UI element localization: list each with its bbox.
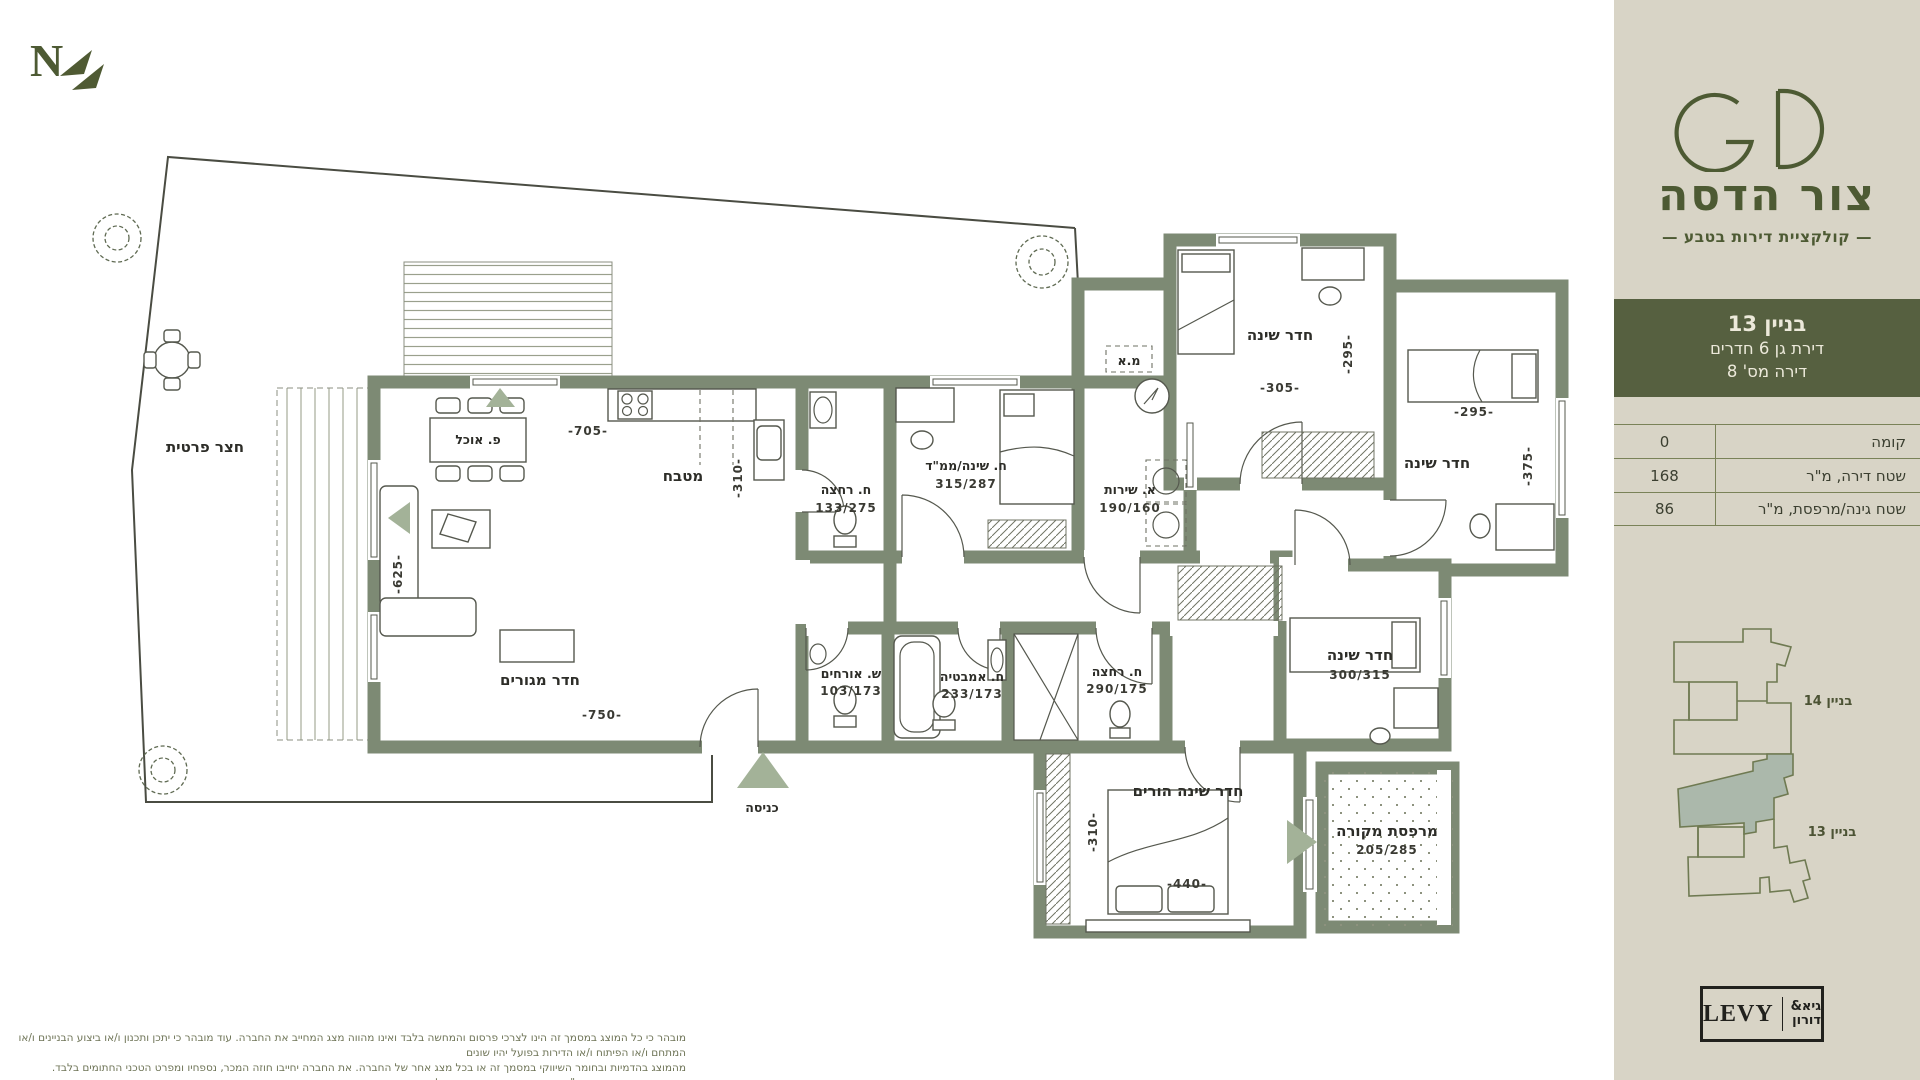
disclaimer-line2: מהמוצג בהדמיות ובחומר השיווקי במסמך זה א… [14,1061,686,1080]
dim-terrace: 205/285 [1356,843,1417,857]
north-letter: N [30,35,63,86]
site-label-building14: בניין 14 [1804,694,1853,709]
dim-kitchen-w: -705- [568,424,608,438]
dim-guest: 103/173 [820,684,881,698]
entrance-arrow-icon [737,752,789,788]
wood-deck [277,388,369,740]
room-label-mamad: ח. שינה/ממ"ד [925,458,1007,473]
unit-type: דירת גן 6 חדרים [1614,337,1920,360]
dim-master-d: -310- [1086,812,1100,852]
spec-label-garden: שטח גינה/מרפסת, מ"ר [1716,493,1920,525]
room-label-dining: פ. אוכל [455,432,500,447]
spec-label-area: שטח דירה, מ"ר [1716,459,1920,492]
developer-logo: LEVY גיא& דורון [1700,986,1824,1042]
brand-logo [1614,86,1920,176]
disclaimer-text: מובהר כי כל המוצג במסמך זה הינו לצרכי פר… [14,1031,686,1080]
tree-icon [93,214,141,262]
spec-value-garden: 86 [1614,493,1716,525]
logo-divider [1782,997,1783,1031]
room-label-entrance: כניסה [745,800,779,815]
north-arrow-icon: N [30,35,104,90]
room-label-master: חדר שינה הורים [1133,782,1244,800]
project-subtitle: — קולקציית דירות בטבע — [1614,228,1920,246]
room-label-living: חדר מגורים [500,671,580,689]
dim-shower: 290/175 [1086,682,1147,696]
outdoor-table [144,330,200,390]
table-row: 168 שטח דירה, מ"ר [1614,458,1920,492]
room-label-guest: ש. אורחים [821,666,882,681]
building-number: בניין 13 [1614,311,1920,337]
dim-kitchen-d: -310- [731,458,745,498]
room-label-bath1: ח. רחצה [821,482,872,497]
dim-bath2: 233/173 [941,687,1002,701]
room-label-bed2: חדר שינה [1404,454,1470,472]
dim-living-w: -750- [582,708,622,722]
dim-bed3: 300/315 [1329,668,1390,682]
dim-bed2-d: -375- [1521,446,1535,486]
floor-plan-drawing: N [0,0,1614,1080]
unit-summary-box: בניין 13 דירת גן 6 חדרים דירה מס' 8 [1614,299,1920,397]
room-label-bath2: ח. אמבטיה [940,669,1004,684]
room-label-terrace: מרפסת מקורה [1336,822,1438,840]
info-sidebar: צור הדסה — קולקציית דירות בטבע — בניין 1… [1614,0,1920,1080]
tree-icon [1016,236,1068,288]
floorplan-brochure: N [0,0,1920,1080]
spec-value-floor: 0 [1614,425,1716,458]
room-label-yard: חצר פרטית [166,438,244,456]
site-plan: בניין 14 בניין 13 [1632,608,1902,913]
gd-logo-icon [1662,86,1872,172]
table-row: 0 קומה [1614,424,1920,458]
highlighted-unit [1678,754,1793,834]
dim-bed2-w: -295- [1454,405,1494,419]
room-label-bed3: חדר שינה [1327,646,1393,664]
dim-mamad: 315/287 [935,477,996,491]
room-label-ma: מ.א [1118,353,1141,368]
pergola [404,262,612,376]
dim-bath1: 133/275 [815,501,876,515]
dim-bed1-d: -295- [1341,334,1355,374]
room-label-shower: ח. רחצה [1092,664,1143,679]
dim-bed1-w: -305- [1260,381,1300,395]
dim-master-w: -440- [1167,877,1207,891]
room-label-utility: א. שירות [1104,482,1156,497]
table-row: 86 שטח גינה/מרפסת, מ"ר [1614,492,1920,526]
dim-utility: 190/160 [1099,501,1160,515]
disclaimer-line1: מובהר כי כל המוצג במסמך זה הינו לצרכי פר… [14,1031,686,1061]
project-title: צור הדסה [1614,170,1920,221]
spec-label-floor: קומה [1716,425,1920,458]
room-label-bed1: חדר שינה [1247,326,1313,344]
spec-table: 0 קומה 168 שטח דירה, מ"ר 86 שטח גינה/מרפ… [1614,424,1920,526]
dim-living-d: -625- [391,554,405,594]
developer-name: LEVY [1703,1001,1774,1028]
developer-name-hebrew: גיא& דורון [1791,1000,1821,1028]
site-label-building13: בניין 13 [1808,825,1857,840]
unit-number: דירה מס' 8 [1614,360,1920,383]
spec-value-area: 168 [1614,459,1716,492]
room-label-kitchen: מטבח [663,467,704,485]
